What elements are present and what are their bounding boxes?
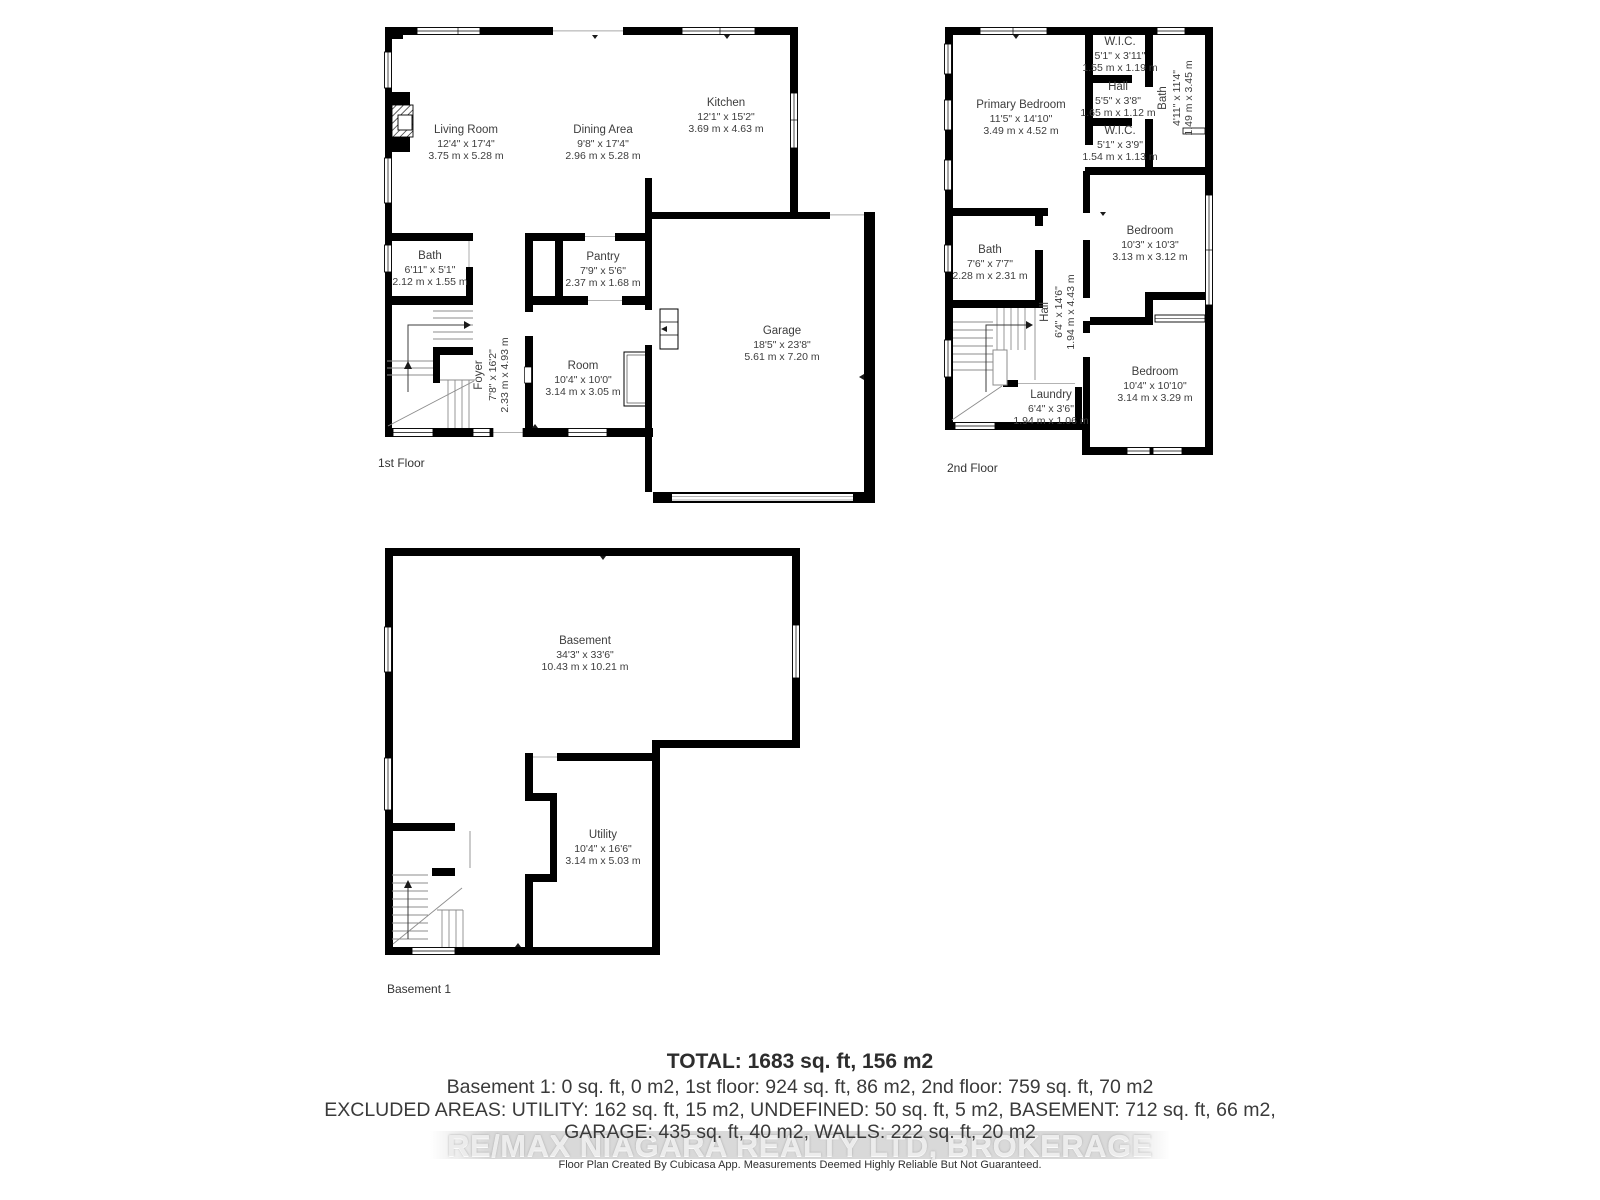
room-dim-imperial: 12'1" x 15'2" <box>688 110 763 122</box>
room-name: W.I.C. <box>1082 125 1157 139</box>
room-dim-imperial: 10'4" x 10'0" <box>545 373 620 385</box>
room-name: Bath <box>1157 60 1171 135</box>
room-dim-metric: 1.54 m x 1.13 m <box>1082 151 1157 163</box>
room-name: Living Room <box>428 124 503 138</box>
room-dim-imperial: 34'3" x 33'6" <box>542 648 629 660</box>
room-name: Bath <box>392 250 467 264</box>
room-dim-imperial: 5'5" x 3'8" <box>1080 94 1155 106</box>
room-label-wic-bottom: W.I.C. 5'1" x 3'9" 1.54 m x 1.13 m <box>1082 125 1157 163</box>
room-label-bath-1st: Bath 6'11" x 5'1" 2.12 m x 1.55 m <box>392 250 467 288</box>
room-dim-imperial: 7'6" x 7'7" <box>952 257 1027 269</box>
room-label-basement: Basement 34'3" x 33'6" 10.43 m x 10.21 m <box>542 635 629 673</box>
room-dim-metric: 1.49 m x 3.45 m <box>1183 60 1195 135</box>
room-name: Room <box>545 360 620 374</box>
summary-floor-areas: Basement 1: 0 sq. ft, 0 m2, 1st floor: 9… <box>0 1076 1600 1099</box>
room-dim-imperial: 12'4" x 17'4" <box>428 137 503 149</box>
summary-garage-walls: GARAGE: 435 sq. ft, 40 m2, WALLS: 222 sq… <box>0 1121 1600 1144</box>
room-name: Hall <box>1039 274 1053 349</box>
room-dim-imperial: 7'9" x 5'6" <box>565 264 640 276</box>
floorplan-basement-drawing <box>375 540 815 1000</box>
room-name: Kitchen <box>688 97 763 111</box>
room-dim-metric: 3.14 m x 5.03 m <box>565 855 640 867</box>
floorplan-2nd-floor: Primary Bedroom 11'5" x 14'10" 3.49 m x … <box>940 20 1220 475</box>
room-dim-metric: 3.14 m x 3.29 m <box>1117 392 1192 404</box>
room-dim-metric: 10.43 m x 10.21 m <box>542 661 629 673</box>
floor-title-2nd: 2nd Floor <box>947 461 998 475</box>
room-dim-metric: 3.49 m x 4.52 m <box>976 125 1065 137</box>
room-name: Dining Area <box>565 124 640 138</box>
room-dim-metric: 1.55 m x 1.19 m <box>1082 62 1157 74</box>
room-label-hall-top: Hall 5'5" x 3'8" 1.65 m x 1.12 m <box>1080 81 1155 119</box>
room-dim-imperial: 11'5" x 14'10" <box>976 112 1065 124</box>
room-label-utility: Utility 10'4" x 16'6" 3.14 m x 5.03 m <box>565 829 640 867</box>
room-dim-imperial: 6'4" x 14'6" <box>1052 274 1064 349</box>
room-dim-imperial: 6'11" x 5'1" <box>392 263 467 275</box>
floor-title-1st: 1st Floor <box>378 456 425 470</box>
room-label-primary-bedroom: Primary Bedroom 11'5" x 14'10" 3.49 m x … <box>976 99 1065 137</box>
room-dim-imperial: 9'8" x 17'4" <box>565 137 640 149</box>
room-name: Utility <box>565 829 640 843</box>
walls <box>385 548 800 955</box>
room-name: Bedroom <box>1112 225 1187 239</box>
room-name: Basement <box>542 635 629 649</box>
room-name: Bedroom <box>1117 366 1192 380</box>
room-label-foyer: Foyer 7'8" x 16'2" 2.33 m x 4.93 m <box>473 337 511 412</box>
room-label-pantry: Pantry 7'9" x 5'6" 2.37 m x 1.68 m <box>565 251 640 289</box>
summary-excluded-areas: EXCLUDED AREAS: UTILITY: 162 sq. ft, 15 … <box>0 1099 1600 1122</box>
room-name: W.I.C. <box>1082 36 1157 50</box>
room-label-wic-top: W.I.C. 5'1" x 3'11" 1.55 m x 1.19 m <box>1082 36 1157 74</box>
room-label-garage: Garage 18'5" x 23'8" 5.61 m x 7.20 m <box>744 325 819 363</box>
room-dim-imperial: 5'1" x 3'9" <box>1082 138 1157 150</box>
room-dim-metric: 1.65 m x 1.12 m <box>1080 107 1155 119</box>
room-label-laundry: Laundry 6'4" x 3'6" 1.94 m x 1.06 m <box>1013 389 1088 427</box>
room-name: Laundry <box>1013 389 1088 403</box>
door-openings <box>533 753 557 761</box>
room-label-bedroom-2: Bedroom 10'4" x 10'10" 3.14 m x 3.29 m <box>1117 366 1192 404</box>
room-dim-imperial: 18'5" x 23'8" <box>744 338 819 350</box>
entry-steps <box>660 309 678 349</box>
room-name: Garage <box>744 325 819 339</box>
room-dim-metric: 5.61 m x 7.20 m <box>744 351 819 363</box>
room-label-bath-2nd: Bath 7'6" x 7'7" 2.28 m x 2.31 m <box>952 244 1027 282</box>
disclaimer-text: Floor Plan Created By Cubicasa App. Meas… <box>0 1159 1600 1171</box>
floorplan-basement: Basement 34'3" x 33'6" 10.43 m x 10.21 m… <box>375 540 815 1000</box>
room-dim-imperial: 6'4" x 3'6" <box>1013 402 1088 414</box>
room-dim-imperial: 7'8" x 16'2" <box>486 337 498 412</box>
stairs <box>392 831 470 947</box>
floor-title-basement: Basement 1 <box>387 982 451 996</box>
room-dim-metric: 2.33 m x 4.93 m <box>499 337 511 412</box>
door-openings <box>466 232 853 501</box>
room-label-bath-main: Bath 4'11" x 11'4" 1.49 m x 3.45 m <box>1157 60 1195 135</box>
room-dim-metric: 2.37 m x 1.68 m <box>565 277 640 289</box>
room-dim-imperial: 10'4" x 10'10" <box>1117 379 1192 391</box>
room-name: Hall <box>1080 81 1155 95</box>
room-name: Foyer <box>473 337 487 412</box>
room-dim-imperial: 5'1" x 3'11" <box>1082 49 1157 61</box>
room-dim-metric: 2.96 m x 5.28 m <box>565 150 640 162</box>
room-dim-metric: 3.75 m x 5.28 m <box>428 150 503 162</box>
closet-sliding-door <box>1155 315 1205 322</box>
room-label-room: Room 10'4" x 10'0" 3.14 m x 3.05 m <box>545 360 620 398</box>
room-dim-imperial: 10'3" x 10'3" <box>1112 238 1187 250</box>
room-dim-metric: 1.94 m x 4.43 m <box>1065 274 1077 349</box>
room-dim-imperial: 10'4" x 16'6" <box>565 842 640 854</box>
floorplan-page: { "colors": { "wall": "#000000", "label_… <box>0 0 1600 1200</box>
floorplan-1st-floor: Living Room 12'4" x 17'4" 3.75 m x 5.28 … <box>375 20 885 510</box>
room-dim-metric: 2.28 m x 2.31 m <box>952 270 1027 282</box>
room-label-hall-stair: Hall 6'4" x 14'6" 1.94 m x 4.43 m <box>1039 274 1077 349</box>
room-label-bedroom-1: Bedroom 10'3" x 10'3" 3.13 m x 3.12 m <box>1112 225 1187 263</box>
room-dim-metric: 3.69 m x 4.63 m <box>688 123 763 135</box>
room-dim-metric: 3.14 m x 3.05 m <box>545 386 620 398</box>
room-dim-metric: 2.12 m x 1.55 m <box>392 276 467 288</box>
room-name: Pantry <box>565 251 640 265</box>
room-name: Bath <box>952 244 1027 258</box>
door-openings <box>1018 381 1075 386</box>
room-dim-metric: 1.94 m x 1.06 m <box>1013 415 1088 427</box>
stairs <box>387 311 475 428</box>
room-name: Primary Bedroom <box>976 99 1065 113</box>
room-dim-metric: 3.13 m x 3.12 m <box>1112 251 1187 263</box>
summary-total: TOTAL: 1683 sq. ft, 156 m2 <box>0 1050 1600 1074</box>
room-label-kitchen: Kitchen 12'1" x 15'2" 3.69 m x 4.63 m <box>688 97 763 135</box>
room-label-dining-area: Dining Area 9'8" x 17'4" 2.96 m x 5.28 m <box>565 124 640 162</box>
room-label-living-room: Living Room 12'4" x 17'4" 3.75 m x 5.28 … <box>428 124 503 162</box>
room-dim-imperial: 4'11" x 11'4" <box>1170 60 1182 135</box>
windows <box>385 625 800 955</box>
